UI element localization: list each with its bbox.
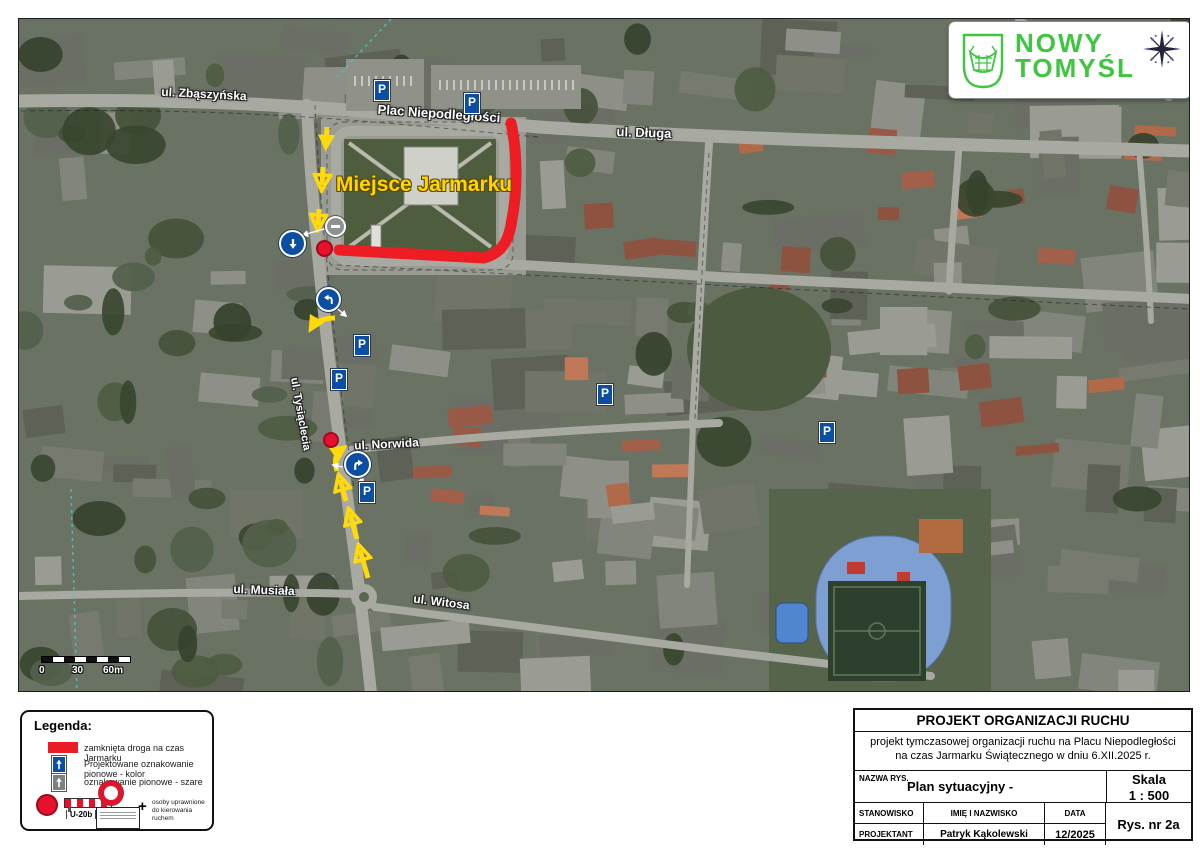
parking-sign: P [464,93,480,114]
closed-road-swatch [48,742,78,753]
project-subtitle-line2: na czas Jarmarku Świątecznego w dniu 6.X… [855,749,1191,763]
project-subtitle: projekt tymczasowej organizacji ruchu na… [855,732,1191,771]
turn-left-sign [316,287,341,312]
no-entry-bar [331,225,340,228]
parking-sign: P [374,80,390,101]
legend-item-signs-color: Projektowane oznakowanie pionowe - kolor [84,759,212,779]
down-arrow-icon [286,237,300,251]
turn-right-arrow-icon [351,458,365,472]
no-entry-ring-icon [99,781,123,805]
logo-line1: NOWY [1015,31,1135,56]
scale-label: Skala [1107,772,1191,788]
title-block: PROJEKT ORGANIZACJI RUCHU projekt tymcza… [853,708,1193,841]
road-closure-dot [323,432,339,448]
designer-name: Patryk Kąkolewski [924,824,1045,845]
scale-tick-60: 60m [103,665,123,676]
scale-tick-30: 30 [72,665,83,676]
designer-role: PROJEKTANT [855,824,924,845]
up-arrow-icon [55,777,63,788]
turn-left-arrow-icon [322,293,335,306]
parking-sign: P [597,384,613,405]
date-value: 12/2025 [1045,824,1106,845]
date-column-label: DATA [1045,803,1106,824]
project-subtitle-line1: projekt tymczasowej organizacji ruchu na… [855,735,1191,749]
legend-note-line2: do kierowania ruchem [152,807,212,823]
legend-box: Legenda: zamknięta droga na czas Jarmark… [20,710,214,831]
plus-sign: + [138,798,147,815]
no-entry-sign-gray [325,216,346,237]
blue-sign-icon [52,756,66,773]
aerial-map: ul. Zbąszyńska Plac Niepodległości ul. D… [18,18,1190,692]
scale-tick-0: 0 [39,665,45,676]
drawing-number: Rys. nr 2a [1106,803,1191,845]
position-label: STANOWISKO [855,803,924,824]
mandatory-down-arrow-sign [279,230,306,257]
road-closure-dot [316,240,333,257]
gray-sign-icon [52,774,66,791]
logo-line2: TOMYŚL [1015,56,1135,81]
drawing-name-value: Plan sytuacyjny - [907,779,1013,794]
scale-value: 1 : 500 [1107,788,1191,804]
logo-card: NOWY TOMYŚL [948,21,1190,99]
up-arrow-icon [55,759,63,770]
info-plate-icon [96,807,140,829]
parking-sign: P [354,335,370,356]
legend-note: osoby uprawnione do kierowania ruchem [152,799,212,823]
legend-note-line1: osoby uprawnione [152,799,212,807]
traffic-plan-overlay [19,19,1190,692]
closure-dot-icon [36,794,58,816]
parking-sign: P [331,369,347,390]
scale-bar [41,656,131,663]
turn-right-sign [344,451,371,478]
name-column-label: IMIĘ I NAZWISKO [924,803,1045,824]
u20b-label: U-20b [66,810,96,819]
legend-title: Legenda: [34,718,92,733]
drawing-name-label: NAZWA RYS. [859,774,909,783]
parking-sign: P [359,482,375,503]
project-title: PROJEKT ORGANIZACJI RUCHU [855,710,1191,732]
parking-sign: P [819,422,835,443]
town-crest-icon [961,32,1005,90]
compass-rose-icon [1141,28,1183,70]
market-area-label: Miejsce Jarmarku [314,173,534,197]
